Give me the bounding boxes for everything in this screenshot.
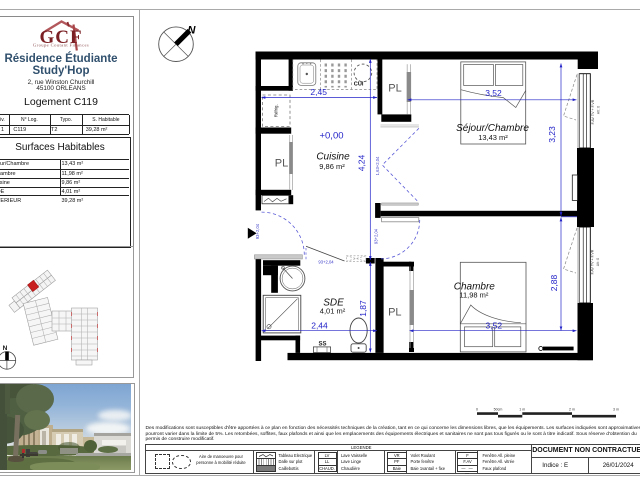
svg-text:Alt : 0: Alt : 0 [597, 106, 601, 114]
svg-text:2 m: 2 m [569, 407, 575, 411]
svg-text:CUI: CUI [354, 81, 364, 87]
svg-text:2,45: 2,45 [310, 87, 327, 97]
svg-text:N: N [3, 345, 8, 352]
svg-text:Cuisine: Cuisine [316, 152, 350, 163]
svg-text:Alt : 0: Alt : 0 [596, 258, 600, 266]
svg-text:F.AV TV + F.VR: F.AV TV + F.VR [591, 99, 595, 124]
svg-text:2,88: 2,88 [549, 274, 559, 291]
svg-text:93+2,04: 93+2,04 [318, 260, 334, 265]
svg-text:1 m: 1 m [519, 407, 525, 411]
svg-text:PL: PL [275, 158, 288, 170]
svg-text:2,44: 2,44 [311, 321, 328, 331]
svg-text:Réfrig.: Réfrig. [274, 104, 279, 117]
svg-text:50cm: 50cm [494, 407, 503, 411]
svg-text:1,63+2,04: 1,63+2,04 [375, 156, 380, 175]
svg-text:4,01 m²: 4,01 m² [320, 307, 346, 316]
svg-text:3,23: 3,23 [547, 126, 557, 143]
svg-text:3 m: 3 m [613, 407, 619, 411]
svg-text:PL: PL [388, 83, 401, 95]
svg-text:11,98 m²: 11,98 m² [459, 291, 489, 300]
svg-text:+0,00: +0,00 [319, 130, 343, 141]
svg-text:3,52: 3,52 [485, 88, 502, 98]
svg-text:13,43 m²: 13,43 m² [478, 133, 508, 142]
svg-text:3,52: 3,52 [486, 321, 503, 331]
svg-text:4,24: 4,24 [357, 154, 367, 171]
svg-text:1,87: 1,87 [358, 300, 368, 317]
svg-text:PL: PL [388, 307, 401, 319]
svg-text:N: N [188, 25, 197, 37]
svg-text:0: 0 [476, 407, 478, 411]
svg-text:F.AV TV + F.VR: F.AV TV + F.VR [591, 249, 595, 274]
svg-text:9,86 m²: 9,86 m² [319, 162, 345, 171]
svg-text:93+2,04: 93+2,04 [373, 228, 378, 244]
svg-text:93+2,04: 93+2,04 [255, 223, 260, 239]
